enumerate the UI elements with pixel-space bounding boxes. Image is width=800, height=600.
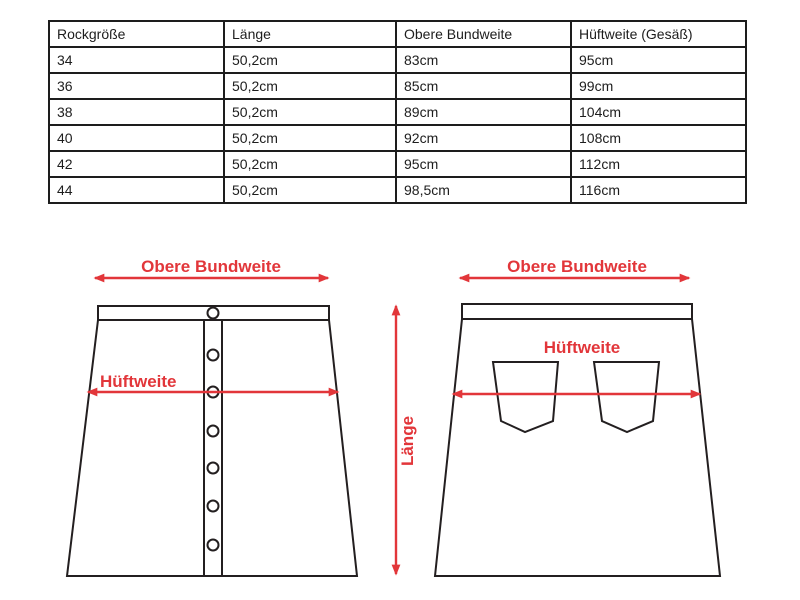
table-cell: 42 (49, 151, 224, 177)
table-cell: 50,2cm (224, 47, 396, 73)
button-icon (208, 501, 219, 512)
back-skirt-drawing: Obere Bundweite Hüftweite Länge (396, 257, 720, 576)
back-hip-width-label: Hüftweite (544, 338, 621, 357)
pocket-right (594, 362, 659, 432)
table-cell: 83cm (396, 47, 571, 73)
back-waistband (462, 304, 692, 319)
table-cell: 99cm (571, 73, 746, 99)
table-row: 42 50,2cm 95cm 112cm (49, 151, 746, 177)
button-icon (208, 350, 219, 361)
table-cell: 108cm (571, 125, 746, 151)
size-table: Rockgröße Länge Obere Bundweite Hüftweit… (48, 20, 747, 204)
button-icon (208, 308, 219, 319)
table-row: 34 50,2cm 83cm 95cm (49, 47, 746, 73)
column-header: Rockgröße (49, 21, 224, 47)
table-cell: 98,5cm (396, 177, 571, 203)
table-cell: 50,2cm (224, 99, 396, 125)
table-cell: 50,2cm (224, 177, 396, 203)
table-cell: 40 (49, 125, 224, 151)
table-cell: 89cm (396, 99, 571, 125)
table-cell: 44 (49, 177, 224, 203)
table-row: 38 50,2cm 89cm 104cm (49, 99, 746, 125)
table-cell: 38 (49, 99, 224, 125)
table-row: 44 50,2cm 98,5cm 116cm (49, 177, 746, 203)
front-skirt-drawing: Obere Bundweite Hüftweite (67, 257, 357, 576)
table-cell: 50,2cm (224, 151, 396, 177)
table-cell: 95cm (396, 151, 571, 177)
button-icon (208, 540, 219, 551)
back-skirt-body (435, 319, 720, 576)
front-waist-width-label: Obere Bundweite (141, 257, 281, 276)
back-waist-width-label: Obere Bundweite (507, 257, 647, 276)
table-cell: 95cm (571, 47, 746, 73)
table-cell: 112cm (571, 151, 746, 177)
column-header: Hüftweite (Gesäß) (571, 21, 746, 47)
skirt-measurement-diagram: Obere Bundweite Hüftweite Obere Bundweit… (0, 228, 800, 600)
table-cell: 50,2cm (224, 73, 396, 99)
button-icon (208, 463, 219, 474)
table-cell: 50,2cm (224, 125, 396, 151)
table-cell: 116cm (571, 177, 746, 203)
pocket-left (493, 362, 558, 432)
length-label: Länge (398, 416, 417, 466)
table-cell: 92cm (396, 125, 571, 151)
table-header-row: Rockgröße Länge Obere Bundweite Hüftweit… (49, 21, 746, 47)
table-cell: 104cm (571, 99, 746, 125)
table-cell: 85cm (396, 73, 571, 99)
table-row: 36 50,2cm 85cm 99cm (49, 73, 746, 99)
table-cell: 36 (49, 73, 224, 99)
front-hip-width-label: Hüftweite (100, 372, 177, 391)
column-header: Länge (224, 21, 396, 47)
table-cell: 34 (49, 47, 224, 73)
button-icon (208, 426, 219, 437)
column-header: Obere Bundweite (396, 21, 571, 47)
table-row: 40 50,2cm 92cm 108cm (49, 125, 746, 151)
